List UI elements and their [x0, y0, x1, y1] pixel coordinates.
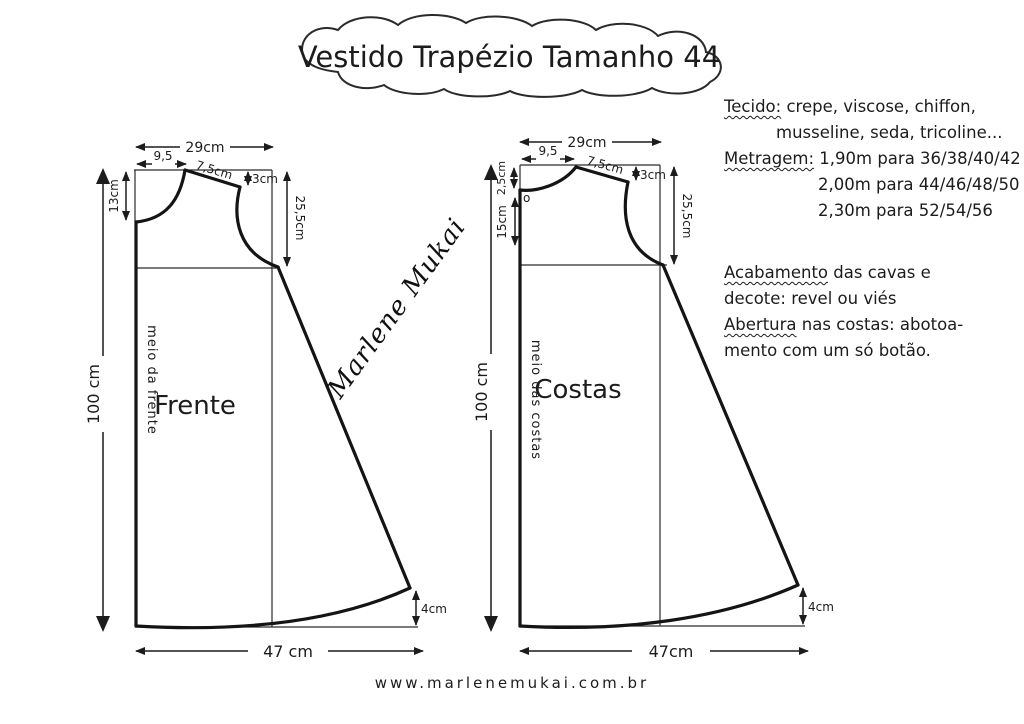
acabamento-text: das cavas e [833, 263, 930, 282]
back-hem-rise-label: 4cm [808, 600, 834, 614]
front-neck-depth-label: 13cm [107, 179, 121, 213]
front-neck-width-label: 9,5 [153, 149, 172, 163]
notes-panel: Tecido: crepe, viscose, chiffon, musseli… [724, 94, 1019, 364]
back-length-dimension: 100 cm [472, 166, 491, 630]
front-piece-diagram: 29cm 9,5 7,5cm 3cm 13cm 25,5cm 100 cm [80, 130, 460, 670]
abertura-label: Abertura [724, 315, 797, 334]
back-opening-length-dimension: 15cm [495, 198, 515, 245]
abertura-text: nas costas: abotoa- [802, 315, 963, 334]
acabamento-label: Acabamento [724, 263, 828, 282]
back-neck-width-label: 9,5 [538, 144, 557, 158]
metragem-line: Metragem: 1,90m para 36/38/40/42 [724, 146, 1019, 172]
back-neck-depth-label: 2,5cm [495, 161, 508, 195]
front-hem-curve [136, 588, 410, 628]
front-armhole-depth-dimension: 25,5cm [287, 172, 307, 266]
front-top-width-label: 29cm [185, 140, 224, 156]
tecido-label: Tecido: [724, 97, 781, 116]
back-shoulder-drop-dimension: 3cm [636, 167, 666, 182]
tecido-line: Tecido: crepe, viscose, chiffon, [724, 94, 1019, 120]
back-armhole-depth-dimension: 25,5cm [674, 167, 694, 264]
front-hem-rise-dimension: 4cm [416, 591, 447, 625]
back-armhole-curve [625, 182, 663, 265]
back-neck-width-dimension: 9,5 [522, 144, 574, 159]
front-shoulder-drop-label: 3cm [252, 172, 278, 186]
back-hem-width-label: 47cm [649, 642, 694, 661]
acabamento-line2: decote: revel ou viés [724, 286, 1019, 312]
front-length-label: 100 cm [84, 364, 103, 424]
front-hem-width-dimension: 47 cm [136, 642, 423, 661]
back-length-label: 100 cm [472, 362, 491, 422]
abertura-line2: mento com um só botão. [724, 338, 1019, 364]
title-cloud: Vestido Trapézio Tamanho 44 [278, 10, 740, 98]
back-neck-depth-dimension: 2,5cm [495, 161, 514, 195]
back-hem-width-dimension: 47cm [520, 642, 808, 661]
back-hem-rise-dimension: 4cm [803, 588, 834, 624]
front-neck-width-dimension: 9,5 [137, 149, 186, 164]
button-mark: o [523, 191, 530, 205]
tecido-line2: musseline, seda, tricoline... [724, 120, 1019, 146]
front-neckline-curve [136, 170, 185, 222]
front-piece-title: Frente [154, 391, 236, 421]
notes-gap [724, 224, 1019, 260]
back-top-width-label: 29cm [567, 135, 606, 151]
metragem-row3: 2,30m para 52/54/56 [724, 198, 1019, 224]
acabamento-line: Acabamento das cavas e [724, 260, 1019, 286]
back-hem-curve [520, 585, 798, 627]
page-title: Vestido Trapézio Tamanho 44 [298, 40, 720, 74]
metragem-label: Metragem: [724, 149, 814, 168]
metragem-row1: 1,90m para 36/38/40/42 [819, 149, 1020, 168]
pattern-sheet: Vestido Trapézio Tamanho 44 29cm [0, 0, 1024, 724]
tecido-text: crepe, viscose, chiffon, [786, 97, 975, 116]
front-neck-depth-dimension: 13cm [107, 172, 126, 220]
back-opening-label: 15cm [495, 205, 509, 239]
abertura-line: Abertura nas costas: abotoa- [724, 312, 1019, 338]
front-armhole-depth-label: 25,5cm [293, 195, 307, 240]
back-shoulder-length-label: 7,5cm [585, 153, 625, 177]
back-neckline-curve [520, 167, 576, 190]
back-armhole-depth-label: 25,5cm [680, 193, 694, 238]
website-url: www.marlenemukai.com.br [0, 674, 1024, 692]
front-hem-width-label: 47 cm [263, 642, 313, 661]
front-shoulder-drop-dimension: 3cm [248, 172, 278, 186]
back-piece-title: Costas [534, 375, 621, 405]
metragem-row2: 2,00m para 44/46/48/50 [724, 172, 1019, 198]
front-hem-rise-label: 4cm [421, 602, 447, 616]
front-length-dimension: 100 cm [84, 170, 103, 630]
back-shoulder-drop-label: 3cm [640, 168, 666, 182]
